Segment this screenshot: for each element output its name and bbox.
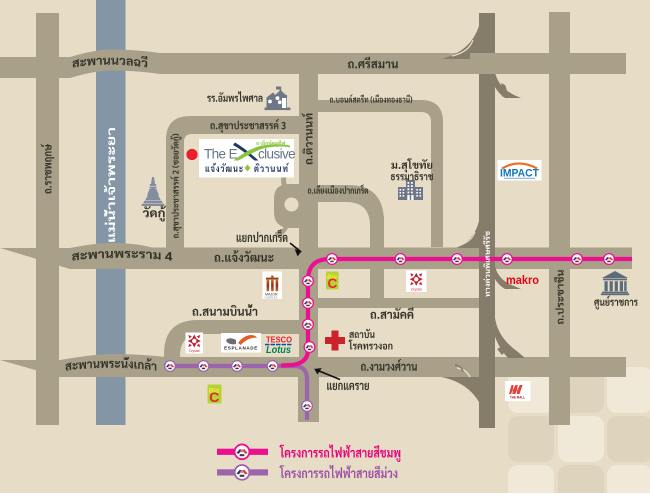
svg-text:THE MALL: THE MALL	[510, 396, 525, 400]
svg-text:The E: The E	[204, 147, 238, 162]
svg-text:TESCO: TESCO	[266, 335, 292, 345]
svg-text:makro: makro	[506, 273, 539, 287]
svg-text:IMPACT: IMPACT	[500, 168, 539, 180]
svg-text:Crystal: Crystal	[411, 288, 422, 292]
svg-text:CINEPLEX: CINEPLEX	[265, 296, 278, 300]
svg-text:Lotus: Lotus	[266, 345, 291, 356]
svg-text:C: C	[209, 390, 219, 406]
svg-text:Crystal: Crystal	[189, 349, 200, 353]
svg-text:C: C	[328, 276, 338, 291]
svg-text:ESPLANADE: ESPLANADE	[224, 346, 258, 351]
svg-text:clusive: clusive	[258, 147, 295, 162]
